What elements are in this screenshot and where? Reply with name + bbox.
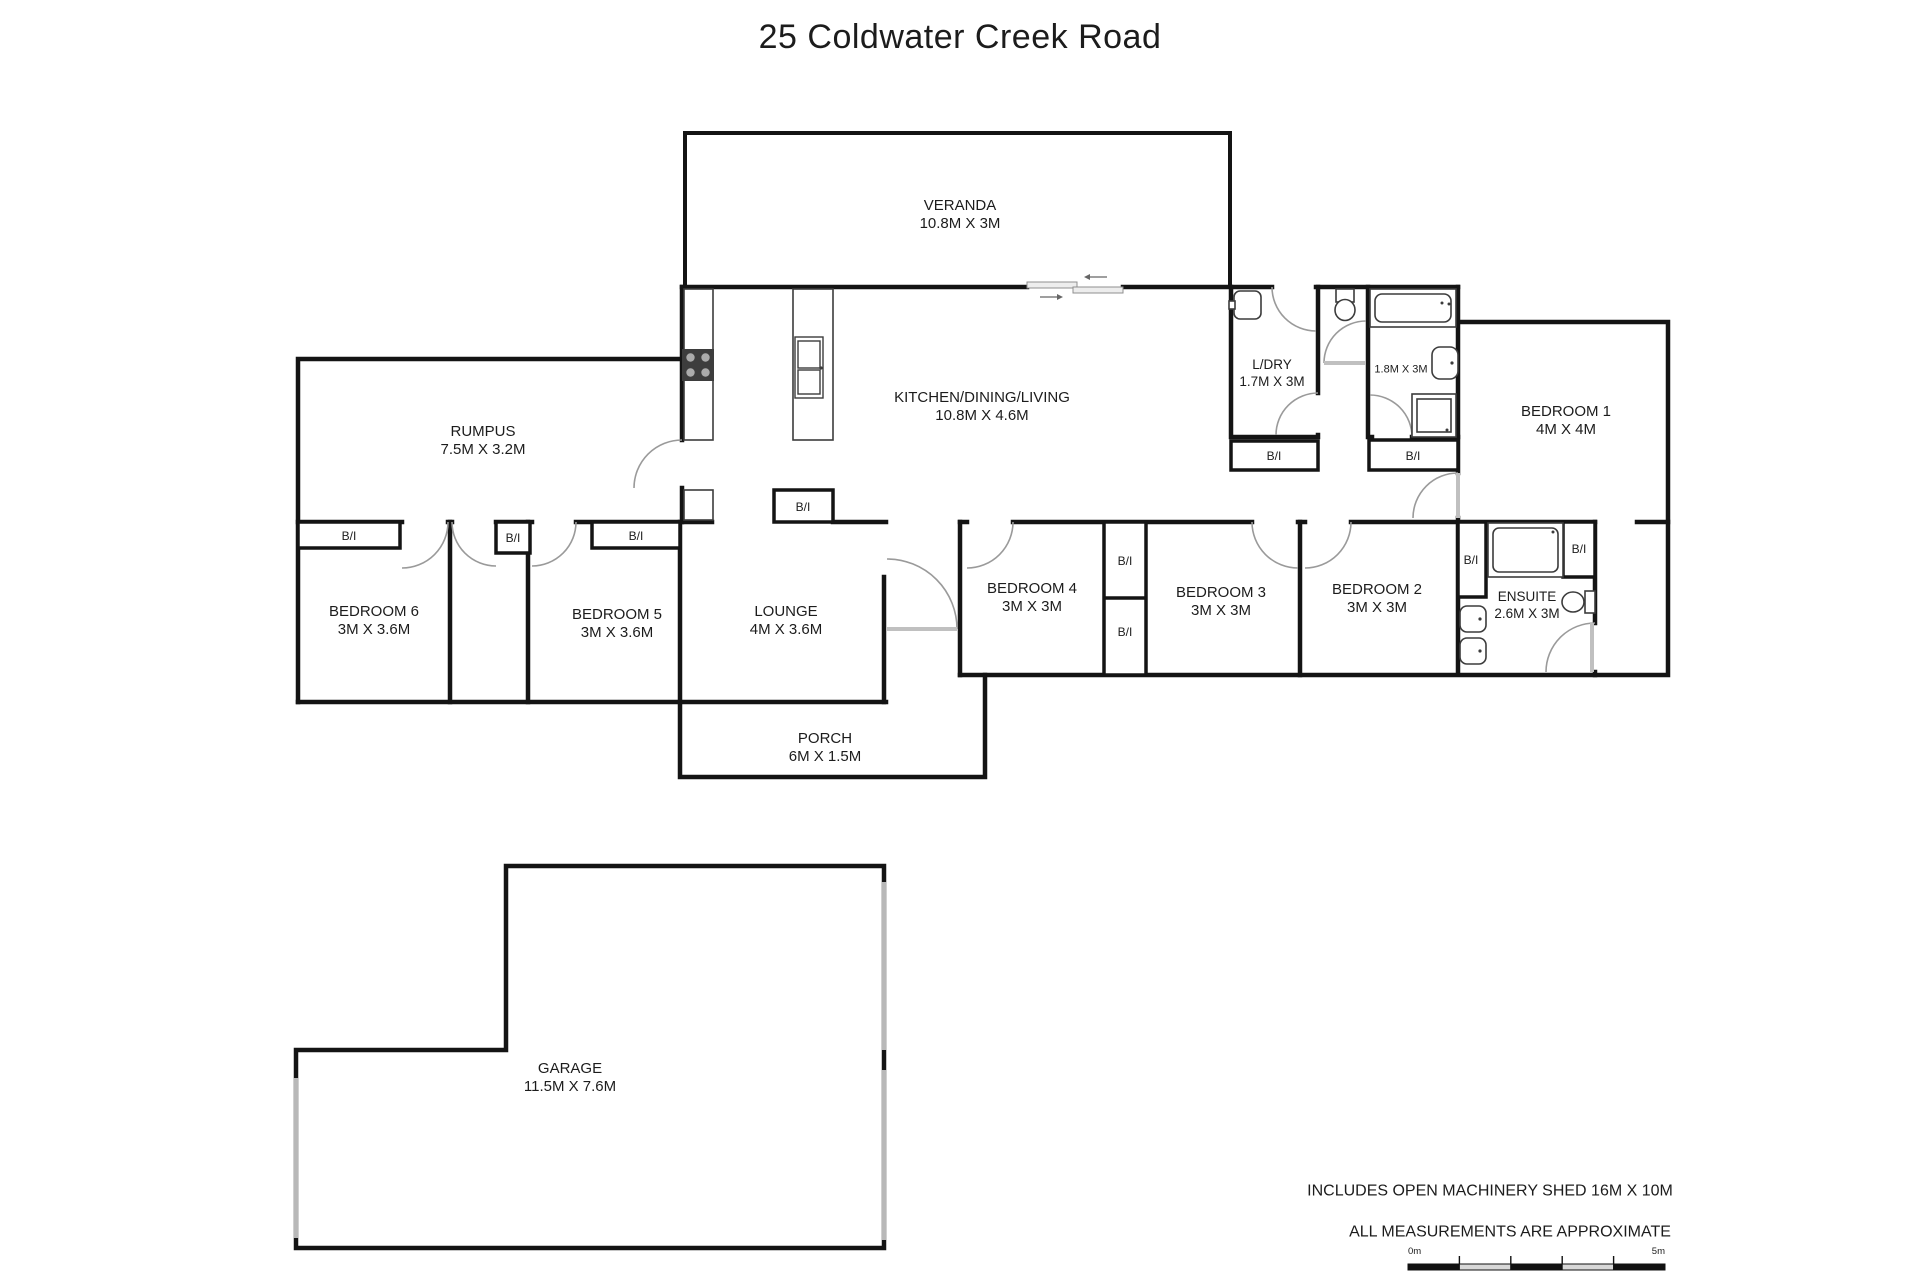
built-in-label: B/I <box>796 501 811 513</box>
garage-outline <box>296 866 884 1248</box>
built-in-label: B/I <box>1464 554 1479 566</box>
note-machinery-shed: INCLUDES OPEN MACHINERY SHED 16M X 10M <box>1307 1182 1673 1201</box>
room-label-laundry: L/DRY1.7M X 3M <box>1239 356 1304 390</box>
built-in-label: B/I <box>1118 555 1133 567</box>
bath <box>1370 289 1456 327</box>
cooktop-icon <box>682 349 714 381</box>
room-label-bedroom4: BEDROOM 43M X 3M <box>987 580 1077 616</box>
page-title: 25 Coldwater Creek Road <box>759 18 1162 56</box>
built-in-label: B/I <box>1406 450 1421 462</box>
vanity-basin <box>1432 347 1458 379</box>
note-measurements: ALL MEASUREMENTS ARE APPROXIMATE <box>1349 1223 1671 1242</box>
ensuite-bath <box>1488 523 1563 577</box>
room-label-veranda: VERANDA10.8M X 3M <box>920 197 1001 233</box>
room-label-ensuite: ENSUITE2.6M X 3M <box>1494 588 1559 622</box>
room-label-porch: PORCH6M X 1.5M <box>789 730 862 766</box>
floor-plan: 25 Coldwater Creek Road VERANDA10.8M X 3… <box>0 0 1920 1280</box>
built-in-label: B/I <box>342 530 357 542</box>
built-in-label: B/I <box>1118 626 1133 638</box>
shower <box>1412 394 1456 437</box>
scale-bar <box>1408 1256 1665 1270</box>
room-label-rumpus: RUMPUS7.5M X 3.2M <box>440 423 525 459</box>
built-in-label: B/I <box>1267 450 1282 462</box>
built-in-label: B/I <box>629 530 644 542</box>
room-label-bathroom: 1.8M X 3M <box>1374 364 1427 377</box>
ensuite-basins <box>1460 606 1486 664</box>
room-label-bedroom5: BEDROOM 53M X 3.6M <box>572 606 662 642</box>
room-label-bedroom2: BEDROOM 23M X 3M <box>1332 581 1422 617</box>
room-label-lounge: LOUNGE4M X 3.6M <box>750 603 823 639</box>
scale-bar-end-label: 5m <box>1652 1247 1665 1257</box>
wc-toilet-icon <box>1335 289 1355 321</box>
kitchen-sink <box>795 337 823 398</box>
sliding-door <box>1027 274 1123 300</box>
built-in-boxes <box>298 440 1595 675</box>
scale-bar-start-label: 0m <box>1408 1247 1421 1257</box>
ensuite-toilet-icon <box>1562 591 1595 613</box>
room-label-garage: GARAGE11.5M X 7.6M <box>524 1060 616 1096</box>
room-label-bedroom3: BEDROOM 33M X 3M <box>1176 584 1266 620</box>
laundry-tub <box>1229 291 1261 319</box>
room-label-bedroom1: BEDROOM 14M X 4M <box>1521 403 1611 439</box>
floor-plan-drawing <box>0 0 1920 1280</box>
room-label-kitchen: KITCHEN/DINING/LIVING10.8M X 4.6M <box>894 389 1070 425</box>
built-in-label: B/I <box>1572 543 1587 555</box>
pantry-cupboard <box>684 490 713 520</box>
room-label-bedroom6: BEDROOM 63M X 3.6M <box>329 603 419 639</box>
built-in-label: B/I <box>506 532 521 544</box>
